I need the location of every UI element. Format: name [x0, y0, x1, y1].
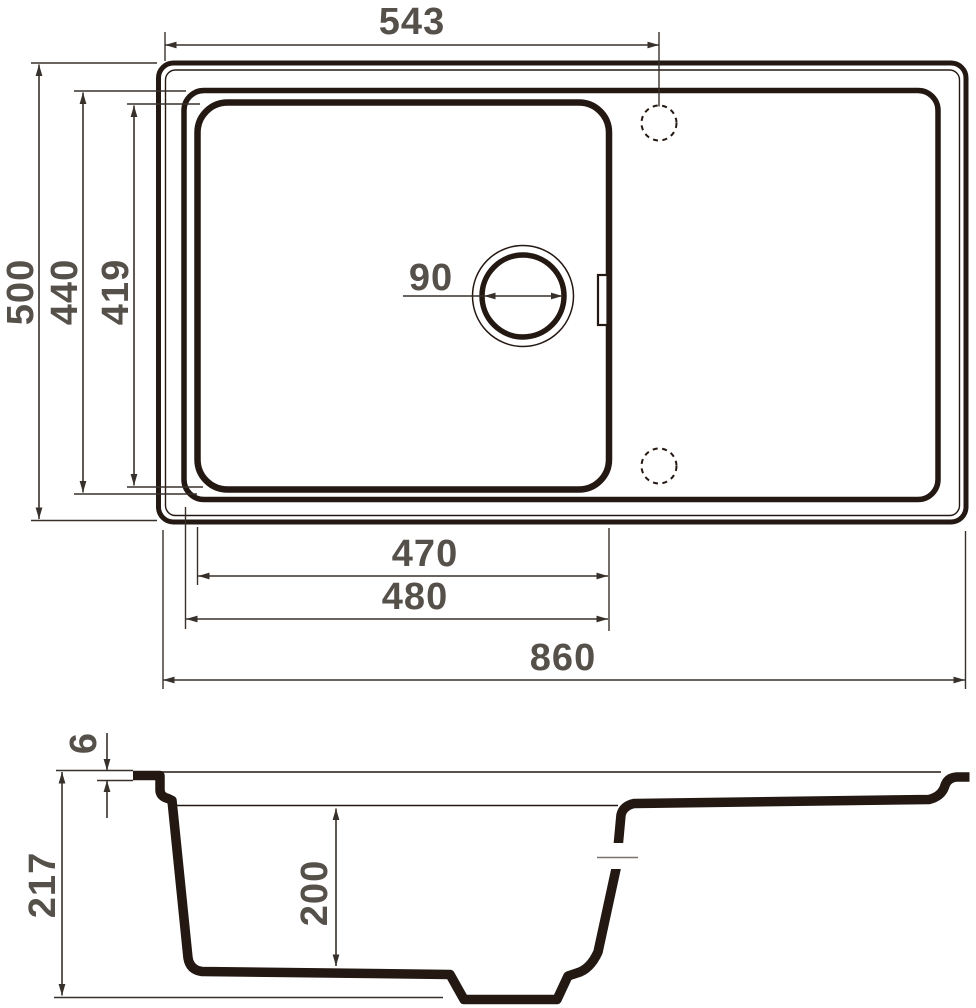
- dim-label-500: 500: [0, 259, 42, 325]
- dim-bowl-depth: 419: [95, 104, 203, 487]
- dim-label-419: 419: [95, 259, 137, 325]
- dim-label-217: 217: [22, 852, 64, 918]
- working-area-outline: [184, 91, 938, 500]
- top-view: 543 500 440 419 90: [0, 1, 966, 689]
- dim-label-480: 480: [382, 576, 448, 618]
- sink-technical-drawing-page: 543 500 440 419 90: [0, 0, 976, 1008]
- dim-label-440: 440: [44, 259, 86, 325]
- dim-label-470: 470: [392, 533, 458, 575]
- dim-label-543: 543: [379, 1, 445, 43]
- dim-label-90: 90: [409, 257, 453, 299]
- section-view: 6 217 200: [22, 732, 970, 1000]
- dim-label-200: 200: [294, 860, 336, 926]
- faucet-hole-top-icon: [642, 106, 677, 141]
- overflow-mark: [598, 275, 608, 325]
- section-profile-outline: [133, 776, 970, 1000]
- dim-label-6: 6: [63, 732, 105, 754]
- overflow-gap: [609, 843, 625, 869]
- dim-overall-width: 860: [163, 530, 966, 689]
- dim-bowl-inner-height: 200: [294, 809, 336, 967]
- dim-rim-thickness: 6: [56, 732, 133, 818]
- dim-label-860: 860: [530, 637, 596, 679]
- faucet-hole-bottom-icon: [642, 449, 677, 484]
- sink-technical-drawing: 543 500 440 419 90: [0, 0, 976, 1008]
